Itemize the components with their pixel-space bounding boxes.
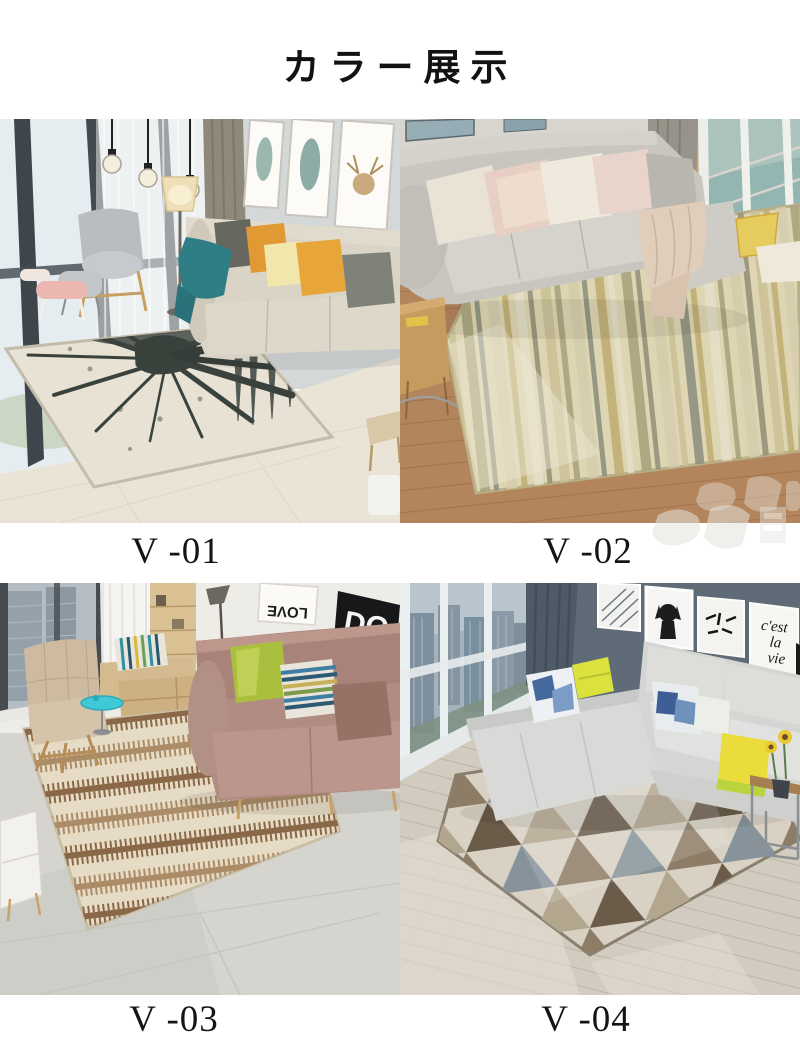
svg-text:c'est: c'est bbox=[760, 618, 789, 637]
variant-v03-photo: LOVE DO bbox=[0, 583, 400, 995]
variant-v02: V -02 bbox=[400, 119, 800, 583]
product-color-sheet: カラー展示 bbox=[0, 0, 800, 1053]
variant-v02-photo bbox=[400, 119, 800, 523]
striped-cushion bbox=[114, 633, 168, 671]
variant-v03: LOVE DO bbox=[0, 583, 400, 1053]
variant-v01-label: V -01 bbox=[0, 523, 376, 583]
variant-v04-label: V -04 bbox=[386, 995, 786, 1053]
variant-v04-photo: c'est la vie bbox=[400, 583, 800, 995]
variant-v04: c'est la vie bbox=[400, 583, 800, 1053]
poster-love: LOVE bbox=[258, 583, 318, 625]
variant-v01: V -01 bbox=[0, 119, 400, 583]
variant-v01-photo bbox=[0, 119, 400, 523]
variant-v03-label: V -03 bbox=[0, 995, 374, 1053]
svg-text:LOVE: LOVE bbox=[266, 602, 308, 622]
sofa-shadow bbox=[400, 299, 750, 339]
page-title: カラー展示 bbox=[283, 29, 518, 91]
svg-text:la: la bbox=[769, 634, 782, 651]
variant-grid: V -01 bbox=[0, 119, 800, 1053]
page-title-band: カラー展示 bbox=[0, 0, 800, 119]
variant-v02-label: V -02 bbox=[388, 523, 788, 583]
svg-text:vie: vie bbox=[767, 650, 786, 668]
